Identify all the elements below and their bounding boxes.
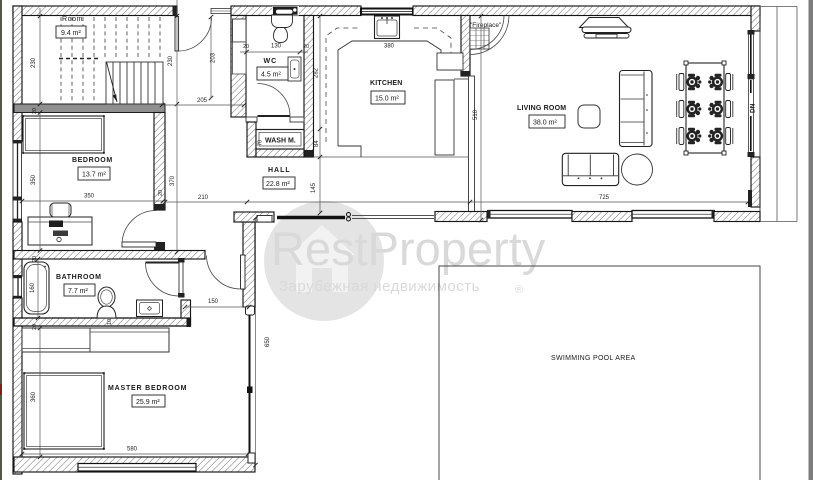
svg-text:380: 380 <box>384 44 395 50</box>
svg-text:130: 130 <box>271 44 282 50</box>
svg-text:70: 70 <box>258 140 264 146</box>
svg-text:BEDROOM: BEDROOM <box>72 157 113 164</box>
svg-text:BATHROOM: BATHROOM <box>56 274 102 281</box>
svg-text:SWIMMING POOL AREA: SWIMMING POOL AREA <box>551 355 636 362</box>
svg-text:84: 84 <box>314 140 320 147</box>
svg-text:350: 350 <box>84 194 95 200</box>
svg-text:Room: Room <box>62 16 83 23</box>
svg-text:4.5 m²: 4.5 m² <box>261 72 282 79</box>
svg-text:25.9 m²: 25.9 m² <box>136 399 160 406</box>
svg-text:10: 10 <box>107 319 113 325</box>
svg-text:370: 370 <box>170 175 176 186</box>
svg-text:20: 20 <box>303 44 309 50</box>
svg-text:150: 150 <box>208 299 219 305</box>
svg-text:20: 20 <box>32 324 38 330</box>
svg-text:15.0 m²: 15.0 m² <box>375 96 399 103</box>
svg-text:20: 20 <box>158 190 164 196</box>
svg-text:DN: DN <box>750 103 757 113</box>
svg-text:KITCHEN: KITCHEN <box>370 80 403 87</box>
svg-text:230: 230 <box>31 57 37 68</box>
svg-text:360: 360 <box>31 391 37 402</box>
svg-text:160: 160 <box>30 282 36 293</box>
svg-text:350: 350 <box>31 174 37 185</box>
svg-text:282: 282 <box>314 67 320 78</box>
svg-text:230: 230 <box>168 55 174 66</box>
svg-text:HALL: HALL <box>268 167 291 174</box>
svg-text:LIVING ROOM: LIVING ROOM <box>517 105 566 112</box>
svg-text:Зарубежная недвижимость: Зарубежная недвижимость <box>279 278 480 295</box>
svg-text:9.4 m²: 9.4 m² <box>61 30 82 37</box>
svg-text:203: 203 <box>211 52 217 63</box>
svg-text:7.7 m²: 7.7 m² <box>68 288 89 295</box>
svg-text:205: 205 <box>197 98 208 104</box>
svg-text:510: 510 <box>473 109 479 120</box>
svg-text:WASH M.: WASH M. <box>265 138 296 145</box>
svg-text:MASTER BEDROOM: MASTER BEDROOM <box>108 385 187 392</box>
svg-text:580: 580 <box>127 447 138 453</box>
svg-text:650: 650 <box>265 336 271 347</box>
svg-text:38.0 m²: 38.0 m² <box>533 120 557 127</box>
svg-text:145: 145 <box>311 182 317 193</box>
svg-text:20: 20 <box>32 108 38 114</box>
svg-text:13.7 m²: 13.7 m² <box>82 172 106 179</box>
svg-text:22.8 m²: 22.8 m² <box>266 181 290 188</box>
svg-text:®: ® <box>515 284 523 296</box>
svg-text:RestProperty: RestProperty <box>271 222 546 275</box>
svg-text:WC: WC <box>264 58 278 65</box>
svg-text:20: 20 <box>243 44 249 50</box>
svg-text:725: 725 <box>599 195 610 201</box>
svg-text:20: 20 <box>32 256 38 262</box>
svg-text:210: 210 <box>198 195 209 201</box>
